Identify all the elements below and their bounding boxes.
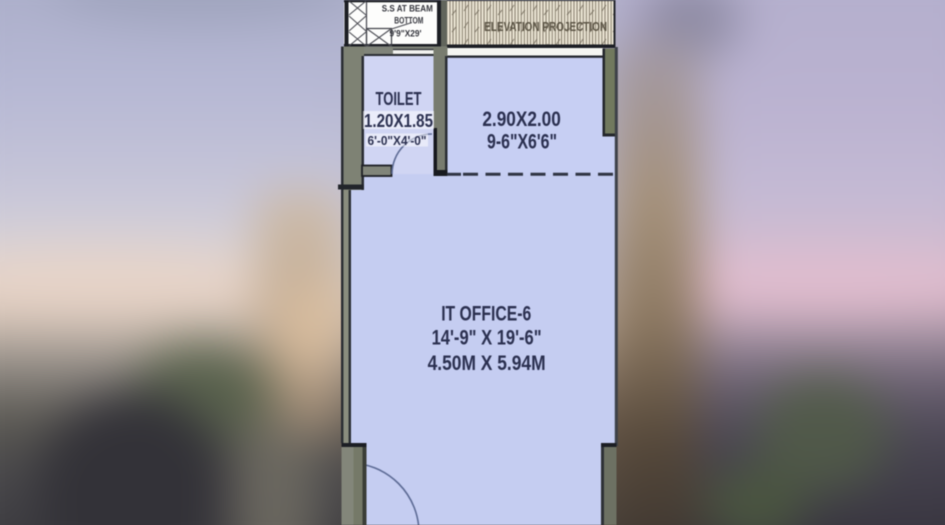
svg-text:IT OFFICE-6: IT OFFICE-6 xyxy=(441,303,531,326)
svg-text:BOTTOM: BOTTOM xyxy=(394,16,423,27)
svg-text:1.20X1.85: 1.20X1.85 xyxy=(364,110,433,131)
svg-text:14'-9" X 19'-6": 14'-9" X 19'-6" xyxy=(432,326,542,349)
svg-text:S.S AT BEAM: S.S AT BEAM xyxy=(382,3,433,14)
svg-text:TOILET: TOILET xyxy=(376,89,422,109)
svg-text:ELEVATION PROJECTION: ELEVATION PROJECTION xyxy=(484,19,607,34)
svg-text:4.50M X 5.94M: 4.50M X 5.94M xyxy=(428,352,546,375)
svg-text:9'9"X29': 9'9"X29' xyxy=(390,29,422,40)
svg-text:9-6"X6'6": 9-6"X6'6" xyxy=(487,130,557,153)
svg-text:2.90X2.00: 2.90X2.00 xyxy=(482,108,561,131)
svg-text:6'-0"X4'-0": 6'-0"X4'-0" xyxy=(368,133,427,148)
